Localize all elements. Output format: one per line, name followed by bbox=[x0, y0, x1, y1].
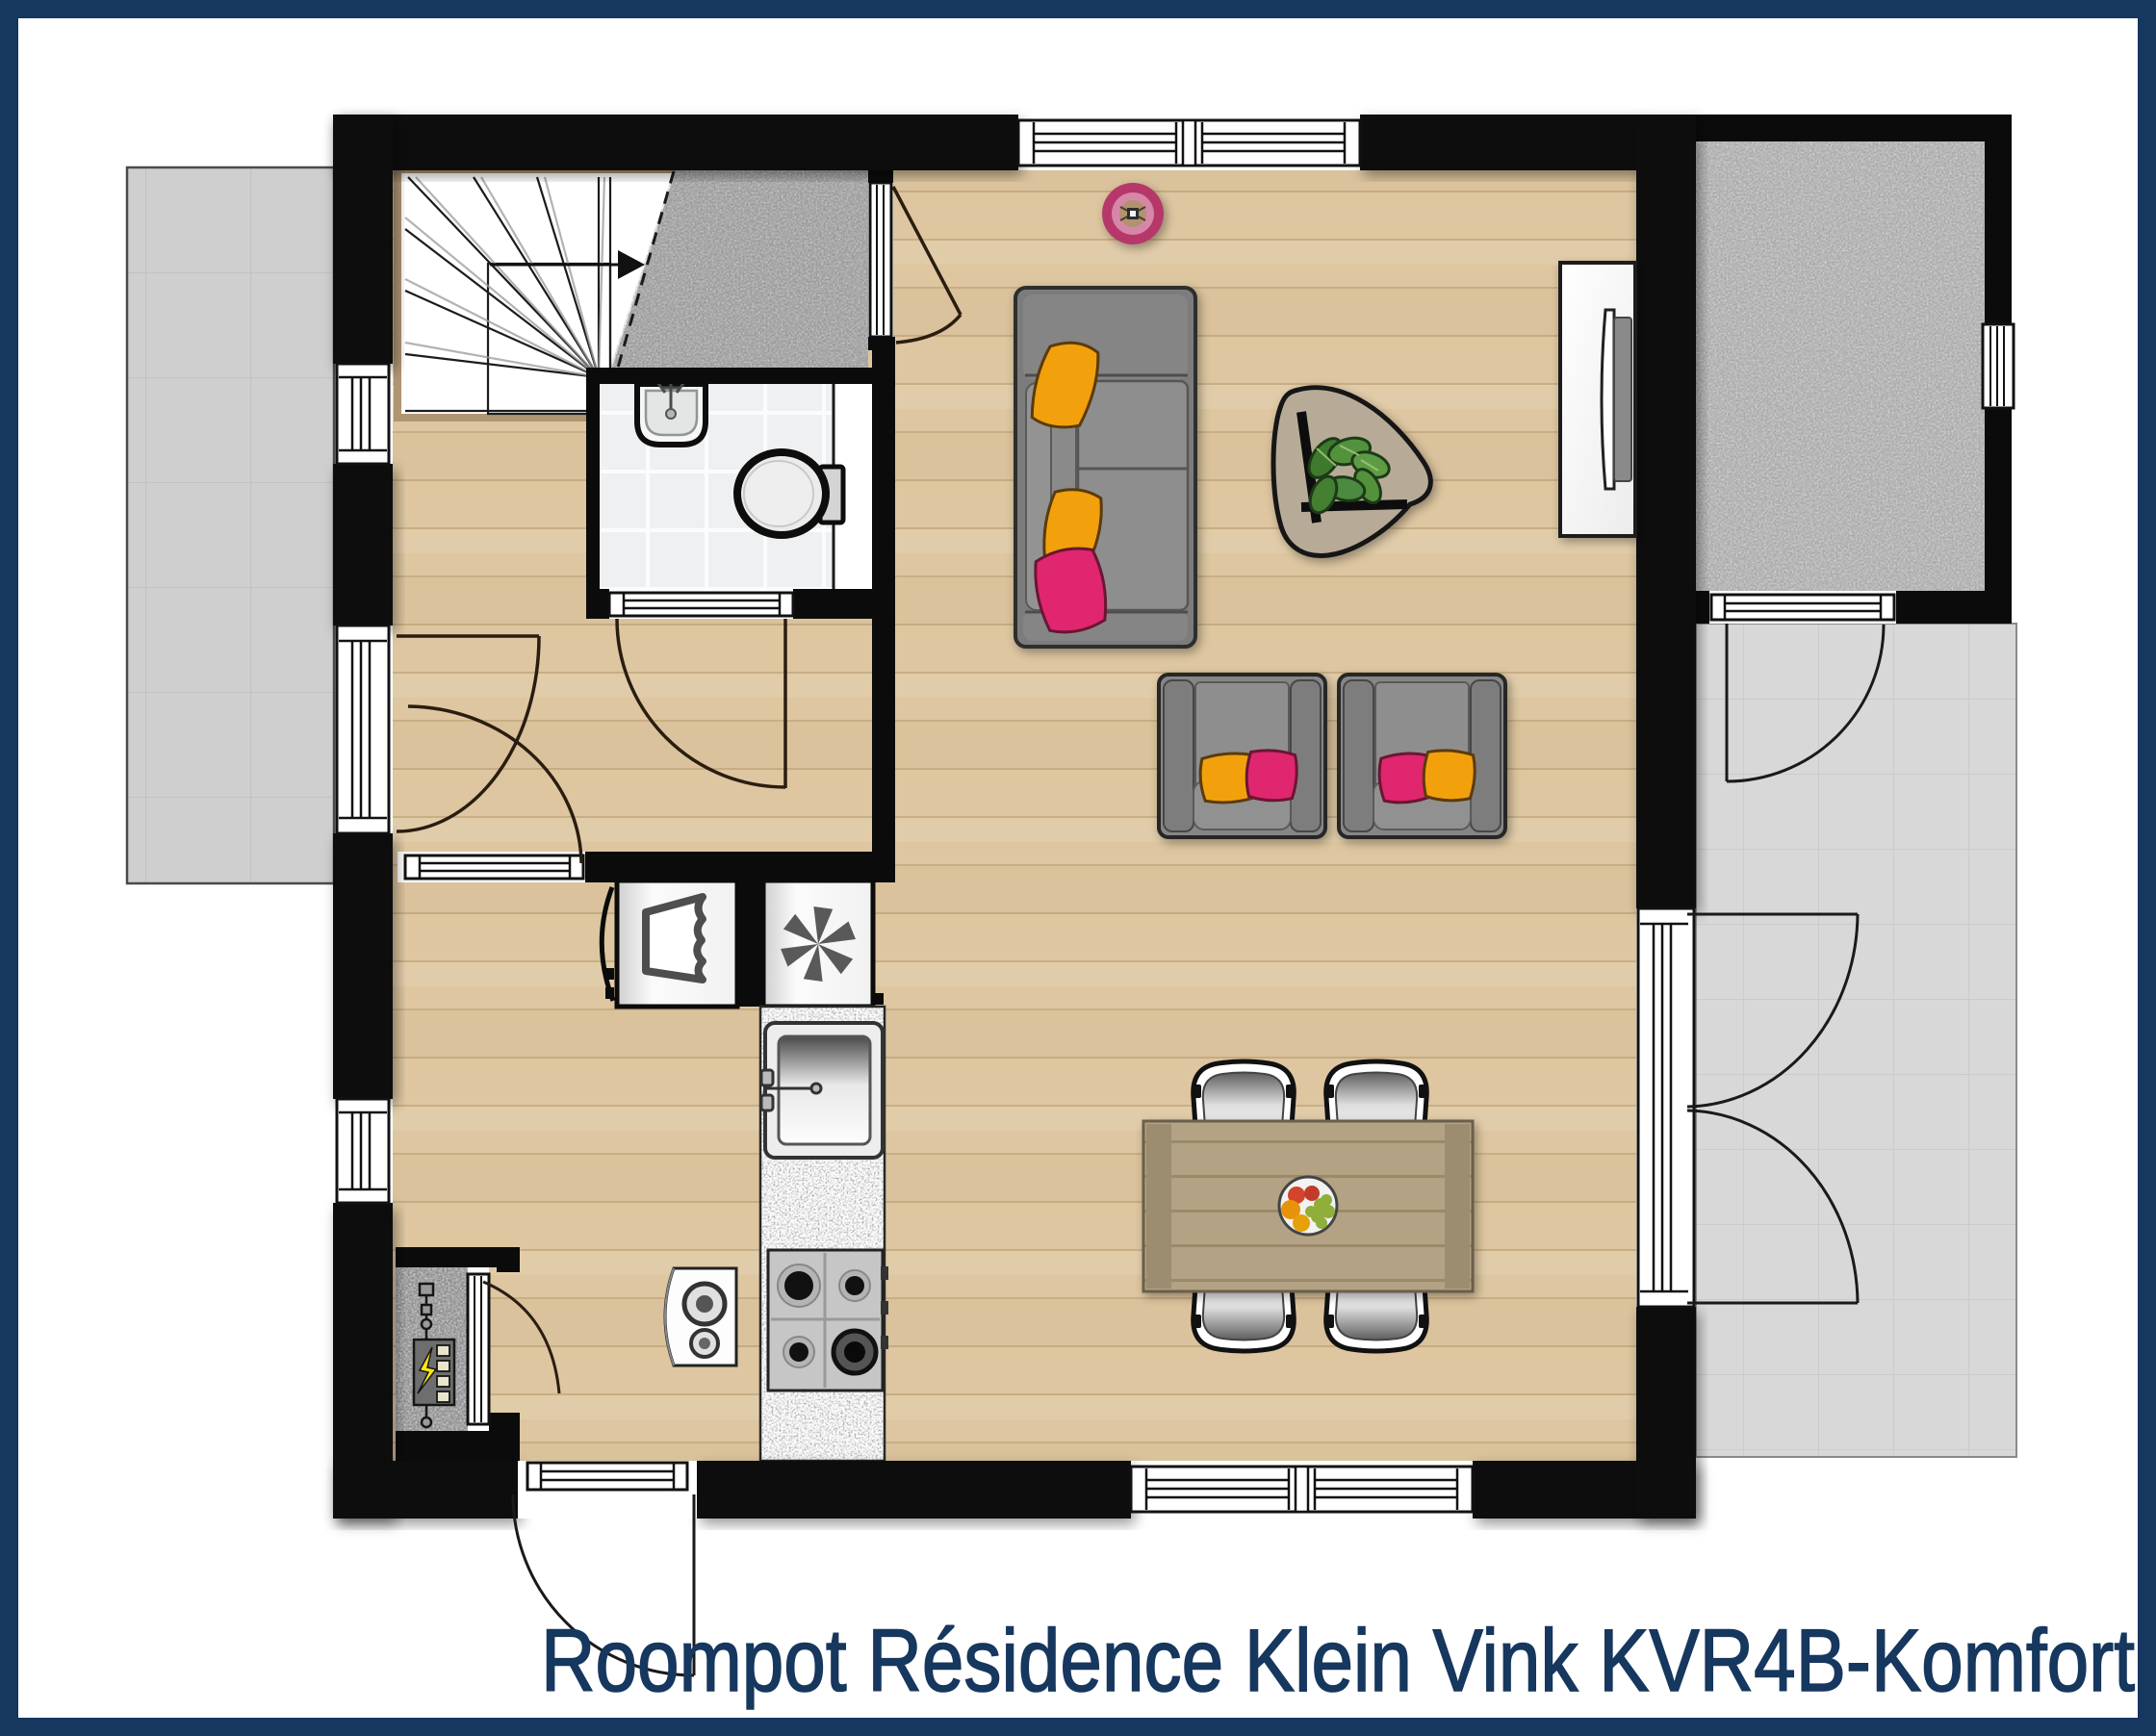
svg-text:Roompot Résidence Klein Vink K: Roompot Résidence Klein Vink KVR4B-Komfo… bbox=[541, 1612, 2135, 1710]
